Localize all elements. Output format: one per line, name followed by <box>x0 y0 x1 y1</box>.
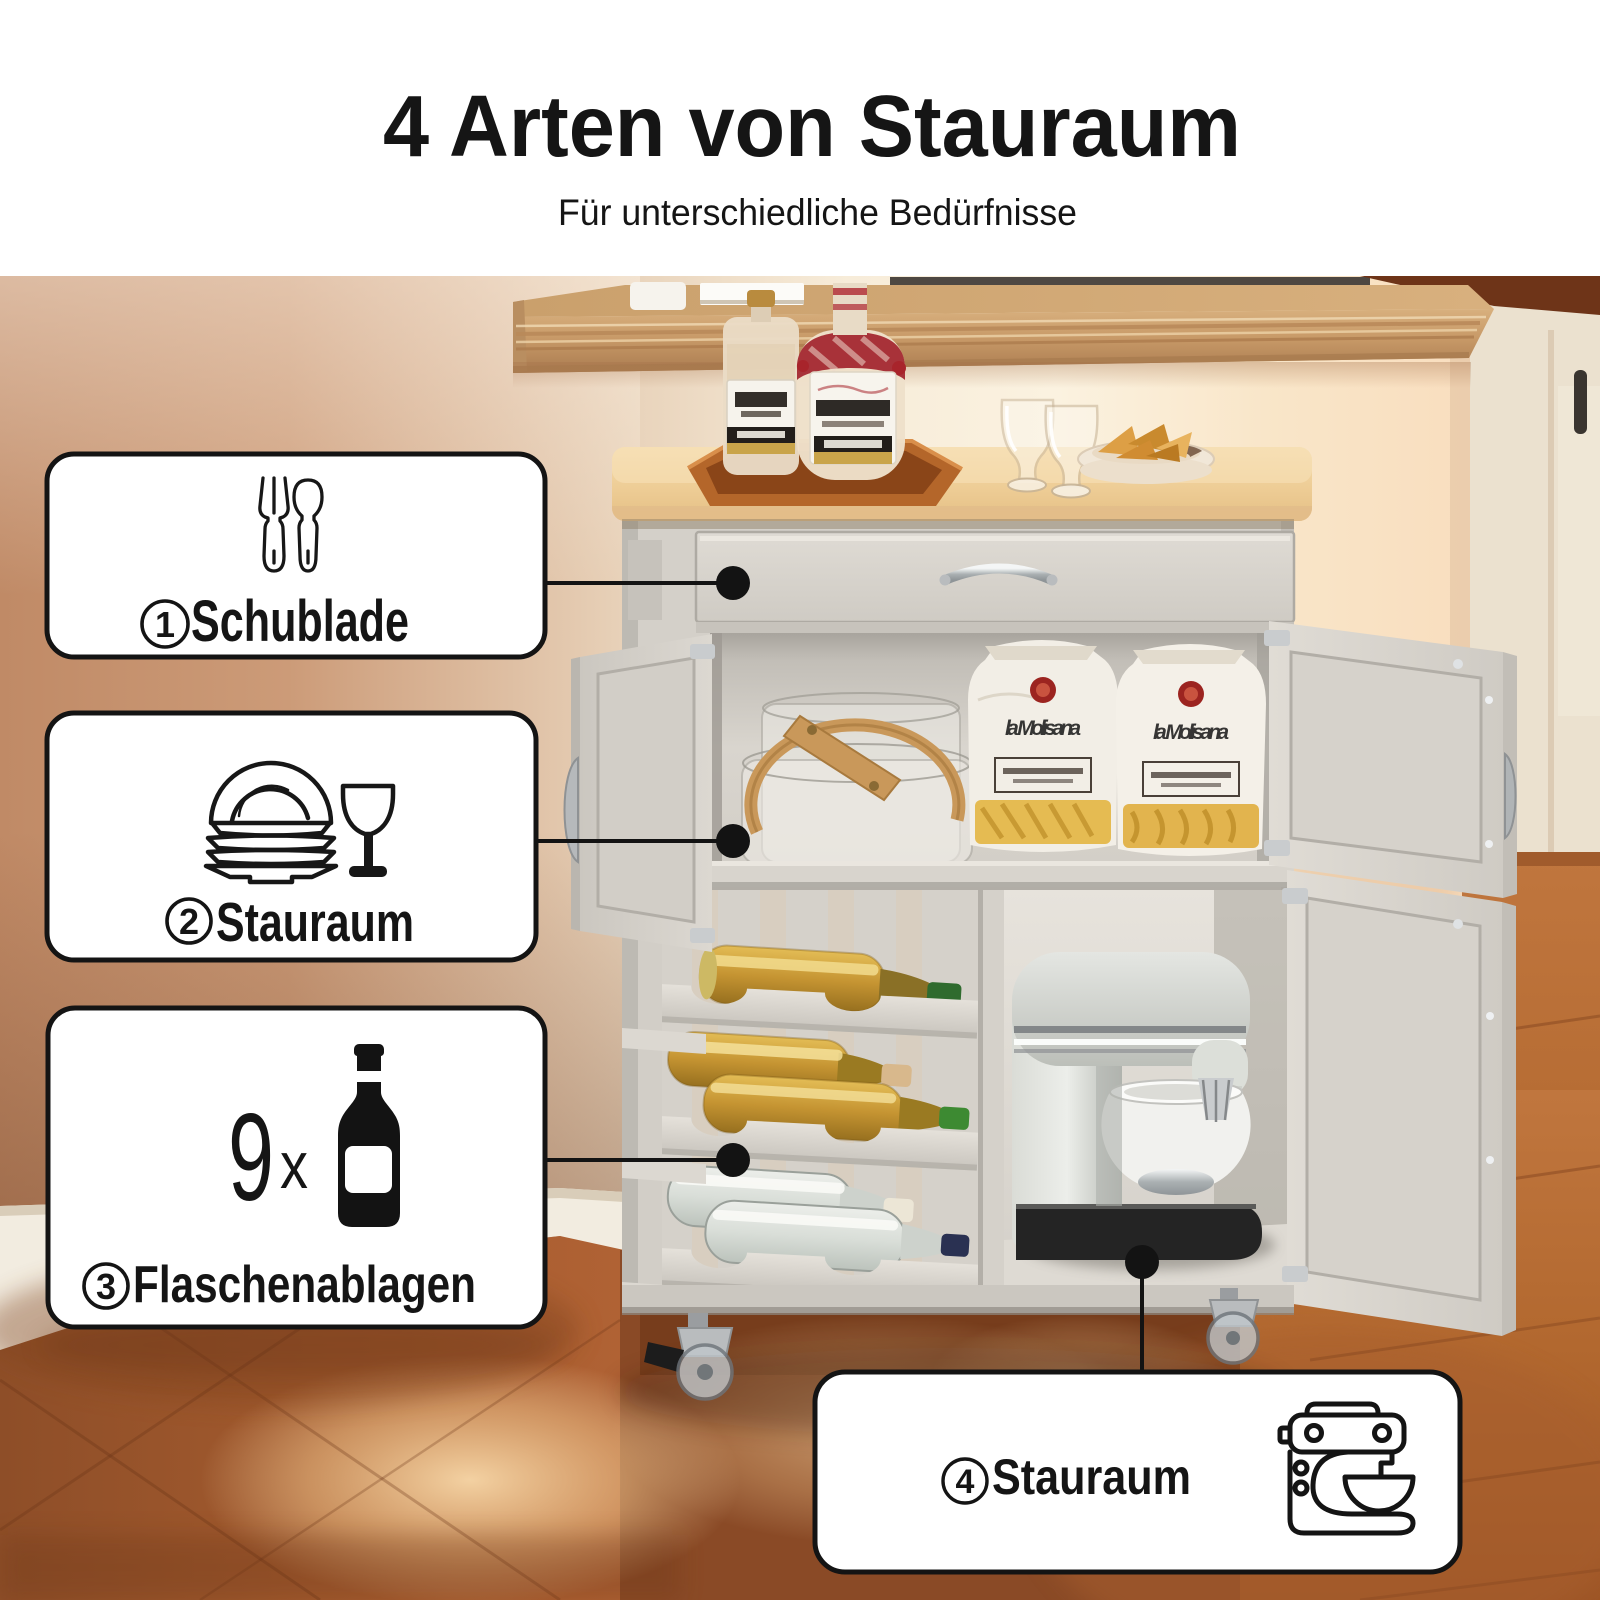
svg-text:x: x <box>280 1128 308 1202</box>
svg-text:la Molisana: la Molisana <box>1005 717 1081 740</box>
svg-text:4: 4 <box>956 1463 975 1501</box>
svg-text:Flaschenablagen: Flaschenablagen <box>133 1256 476 1314</box>
svg-text:Stauraum: Stauraum <box>992 1449 1191 1505</box>
svg-text:9: 9 <box>228 1089 274 1227</box>
svg-text:1: 1 <box>155 604 175 645</box>
svg-text:2: 2 <box>179 901 199 942</box>
svg-text:3: 3 <box>96 1266 116 1307</box>
svg-text:Schublade: Schublade <box>191 589 409 654</box>
svg-text:Für unterschiedliche Bedürfnis: Für unterschiedliche Bedürfnisse <box>558 192 1077 233</box>
svg-text:la Molisana: la Molisana <box>1153 721 1229 744</box>
svg-text:Stauraum: Stauraum <box>216 891 414 953</box>
svg-text:4 Arten von Stauraum: 4 Arten von Stauraum <box>383 78 1241 175</box>
